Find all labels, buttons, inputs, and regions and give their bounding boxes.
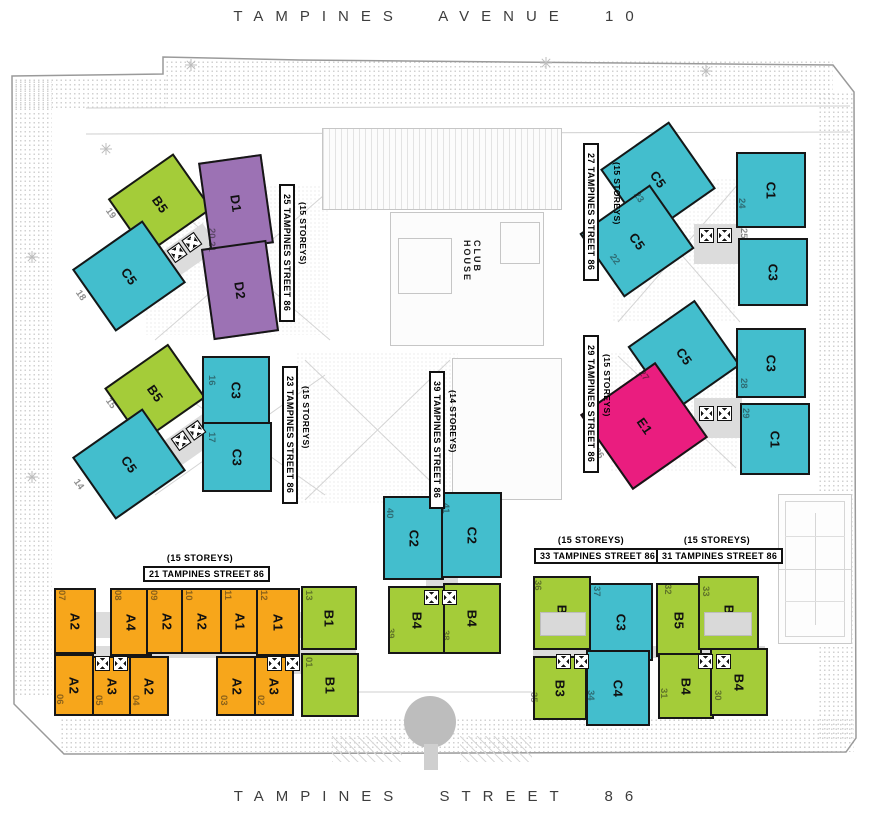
unit-number: 34 — [585, 690, 596, 701]
block-label: C1 — [764, 181, 779, 199]
unit-number: 24 — [736, 198, 747, 209]
unit-number: 07 — [56, 590, 67, 601]
block-label: C3 — [764, 354, 779, 372]
block-label: C2 — [406, 529, 421, 547]
block-c3-ne[interactable]: C3 — [738, 238, 808, 306]
block-label: B5 — [672, 611, 687, 629]
tree-icon — [26, 250, 38, 268]
unit-number: 38 — [440, 630, 451, 641]
block-void — [704, 612, 752, 636]
tree-icon — [700, 64, 712, 82]
storeys-label: (15 STOREYS) — [682, 535, 752, 545]
lift-icon — [698, 654, 713, 669]
block-label: E1 — [633, 415, 655, 437]
tree-icon — [100, 142, 112, 160]
block-label: B3 — [553, 679, 568, 697]
storeys-label: (14 STOREYS) — [448, 390, 458, 453]
unit-number: 10 — [183, 590, 194, 601]
lift-icon — [699, 406, 714, 421]
lift-icon — [717, 406, 732, 421]
block-label: B4 — [732, 673, 747, 691]
block-label: A2 — [194, 612, 209, 630]
block-c1-ne[interactable]: C1 — [736, 152, 806, 228]
clubhouse-label: CLUB HOUSE — [462, 240, 482, 304]
block-label: C1 — [768, 430, 783, 448]
block-label: A2 — [68, 612, 83, 630]
block-label: A2 — [142, 677, 157, 695]
block-label: D2 — [231, 280, 248, 300]
unit-number: 36 — [532, 580, 543, 591]
unit-number: 39 — [385, 628, 396, 639]
lift-lobby — [267, 656, 300, 671]
block-a2-03[interactable]: A2 — [216, 656, 257, 716]
lift-icon — [267, 656, 282, 671]
unit-number: 35 — [528, 692, 539, 703]
block-label: C5 — [673, 344, 695, 367]
block-label: B5 — [149, 192, 171, 215]
unit-number: 16 — [206, 375, 217, 386]
unit-number: 12 — [258, 590, 269, 601]
clubhouse-room — [398, 238, 452, 294]
unit-number: 30 — [712, 690, 723, 701]
lift-icon — [442, 590, 457, 605]
block-label: B1 — [322, 609, 337, 627]
unit-number: 32 — [662, 584, 673, 595]
lift-icon — [556, 654, 571, 669]
block-label: B4 — [465, 610, 480, 628]
storeys-label: (15 STOREYS) — [160, 553, 240, 563]
address-label-31: 31 TAMPINES STREET 86 — [656, 548, 783, 564]
address-label-21: 21 TAMPINES STREET 86 — [143, 566, 270, 582]
unit-number: 08 — [112, 590, 123, 601]
unit-number: 31 — [658, 688, 669, 699]
storeys-label: (15 STOREYS) — [612, 162, 622, 225]
unit-number: 37 — [591, 586, 602, 597]
planting-band-bottom — [60, 718, 854, 752]
unit-number: 04 — [130, 695, 141, 706]
trellis-deck — [322, 128, 562, 210]
unit-number: 01 — [303, 657, 314, 668]
lift-lobby — [556, 654, 589, 669]
block-label: A2 — [159, 612, 174, 630]
lift-lobby — [699, 228, 732, 243]
planting-band-left — [14, 80, 52, 698]
unit-number: 28 — [738, 378, 749, 389]
unit-number: 02 — [255, 695, 266, 706]
entrance-driveway — [424, 744, 438, 770]
block-label: C3 — [614, 613, 629, 631]
site-plan: TAMPINES AVENUE 10 TAMPINES STREET 86 CL… — [0, 0, 879, 819]
storeys-label: (15 STOREYS) — [556, 535, 626, 545]
tree-icon — [540, 56, 552, 74]
lift-lobby — [698, 654, 731, 669]
address-label-33: 33 TAMPINES STREET 86 — [534, 548, 661, 564]
block-label: B1 — [323, 676, 338, 694]
planting-band-top — [165, 60, 833, 104]
pool-deck — [452, 358, 562, 500]
lift-icon — [113, 656, 128, 671]
entrance-hatch-right — [460, 736, 532, 762]
address-label-25: 25 TAMPINES STREET 86 — [279, 184, 295, 322]
lift-icon — [95, 656, 110, 671]
lift-lobby — [95, 656, 128, 671]
lift-lobby — [424, 590, 457, 605]
block-label: C3 — [229, 381, 244, 399]
driveway-circle — [404, 696, 456, 748]
block-c5-w[interactable]: C5 — [72, 408, 186, 520]
block-label: A2 — [229, 677, 244, 695]
storeys-label: (15 STOREYS) — [301, 386, 311, 449]
unit-number: 06 — [54, 694, 65, 705]
block-label: C2 — [464, 526, 479, 544]
address-label-39: 39 TAMPINES STREET 86 — [429, 371, 445, 509]
unit-number: 40 — [384, 508, 395, 519]
lift-icon — [424, 590, 439, 605]
block-label: B4 — [410, 611, 425, 629]
block-c3-w-top[interactable]: C3 — [202, 356, 270, 424]
street-title-bottom: TAMPINES STREET 86 — [0, 788, 879, 805]
address-label-27: 27 TAMPINES STREET 86 — [583, 143, 599, 281]
block-label: A2 — [67, 676, 82, 694]
block-label: B4 — [679, 677, 694, 695]
unit-number: 25 — [738, 228, 749, 239]
unit-number: 14 — [71, 477, 86, 492]
block-label: C3 — [766, 263, 781, 281]
unit-number: 33 — [700, 586, 711, 597]
street-title-top: TAMPINES AVENUE 10 — [0, 8, 879, 25]
entrance-hatch-left — [332, 736, 402, 762]
clubhouse-annex — [500, 222, 540, 264]
block-label: C5 — [626, 229, 648, 252]
block-label: A4 — [124, 613, 139, 631]
address-label-23: 23 TAMPINES STREET 86 — [282, 366, 298, 504]
storeys-label: (15 STOREYS) — [602, 354, 612, 417]
unit-number: 17 — [206, 432, 217, 443]
unit-number: 29 — [740, 408, 751, 419]
unit-number: 13 — [303, 590, 314, 601]
lift-icon — [285, 656, 300, 671]
block-label: C3 — [230, 448, 245, 466]
lift-icon — [717, 228, 732, 243]
block-c4-34[interactable]: C4 — [586, 650, 650, 726]
unit-number: 09 — [148, 590, 159, 601]
block-a2-06[interactable]: A2 — [54, 654, 94, 716]
block-d2[interactable]: D2 — [201, 240, 279, 340]
lift-icon — [574, 654, 589, 669]
block-label: C5 — [118, 264, 140, 287]
block-label: B5 — [144, 381, 166, 404]
block-label: A1 — [233, 612, 248, 630]
unit-number: 20 21 — [206, 228, 217, 252]
block-label: A1 — [271, 613, 286, 631]
unit-number: 11 — [222, 590, 233, 600]
unit-number: 05 — [93, 695, 104, 706]
block-label: C5 — [118, 452, 140, 475]
tennis-court — [778, 494, 852, 644]
tree-icon — [26, 470, 38, 488]
block-a2-04[interactable]: A2 — [129, 656, 169, 716]
block-label: D1 — [227, 193, 244, 213]
address-label-29: 29 TAMPINES STREET 86 — [583, 335, 599, 473]
lift-lobby — [699, 406, 732, 421]
block-label: A3 — [105, 677, 120, 695]
block-void — [540, 612, 586, 636]
tree-icon — [185, 58, 197, 76]
lift-icon — [716, 654, 731, 669]
storeys-label: (15 STOREYS) — [298, 202, 308, 265]
block-label: C4 — [611, 679, 626, 697]
unit-number: 03 — [218, 695, 229, 706]
lift-icon — [699, 228, 714, 243]
block-label: A3 — [267, 677, 282, 695]
